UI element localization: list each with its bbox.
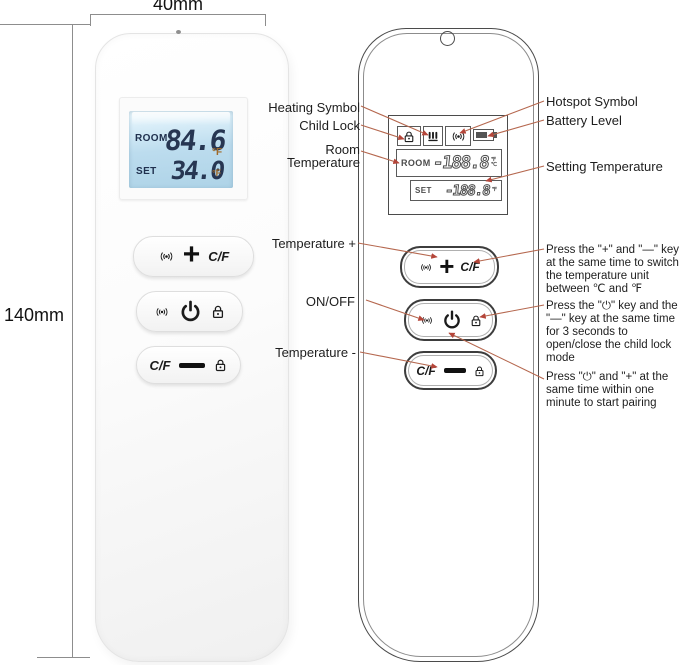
callout-hotspot-symbol: Hotspot Symbol <box>546 95 676 108</box>
callout-child-lock: Child Lock <box>250 119 360 132</box>
callout-heating-symbol: Heating Symbol <box>250 101 360 114</box>
height-dimension-tick-top <box>0 24 90 25</box>
room-label: ROOM <box>135 133 168 144</box>
child-lock-icon <box>403 130 415 143</box>
unit-celsius: ℃ <box>491 163 497 169</box>
instruction-pairing: Press "⏻" and "+" at the same time withi… <box>546 371 679 410</box>
broadcast-signal-icon <box>420 316 434 325</box>
height-dimension-line <box>72 24 73 658</box>
unit-fahrenheit: ℉ <box>492 188 497 194</box>
plus-symbol: + <box>183 240 201 270</box>
height-dimension-label: 140mm <box>0 305 68 326</box>
minus-symbol <box>179 363 205 368</box>
child-lock-icon <box>214 358 227 372</box>
instruction-child-lock: Press the "⏻" key and the "—" key at the… <box>546 300 679 364</box>
child-lock-icon <box>470 314 482 327</box>
set-label: SET <box>415 186 432 195</box>
hotspot-symbol-box <box>445 126 471 146</box>
power-icon <box>179 300 202 323</box>
width-dimension-tick-right <box>265 14 266 26</box>
plus-symbol: + <box>439 253 454 279</box>
temperature-plus-button-diagram[interactable]: + C/F <box>400 246 499 288</box>
room-units: ℉ ℃ <box>491 158 497 169</box>
set-value: -188.8 <box>444 184 490 198</box>
temperature-plus-button[interactable]: + C/F <box>133 236 254 277</box>
lanyard-hole <box>440 31 455 46</box>
minus-symbol <box>444 368 466 373</box>
width-dimension-line <box>90 14 266 15</box>
callout-battery-level: Battery Level <box>546 114 676 127</box>
child-lock-symbol-box <box>397 126 421 146</box>
callout-temperature-minus: Temperature - <box>246 346 356 359</box>
width-dimension-tick-left <box>90 14 91 26</box>
diagram-set-row: SET -188.8 ℉ <box>410 180 502 201</box>
set-label: SET <box>136 166 157 177</box>
callout-on-off: ON/OFF <box>250 295 355 308</box>
set-units: ℉ <box>492 188 497 194</box>
power-button-diagram[interactable] <box>404 299 497 341</box>
battery-terminal <box>494 132 497 138</box>
temperature-minus-button-diagram[interactable]: C/F <box>404 351 497 390</box>
battery-icon <box>473 129 494 141</box>
diagram-room-row: ROOM -188.8 ℉ ℃ <box>396 149 502 177</box>
temperature-minus-button[interactable]: C/F <box>136 346 241 384</box>
width-dimension-label: 40mm <box>130 0 226 13</box>
child-lock-icon <box>211 304 225 319</box>
height-dimension-tick-bottom <box>37 657 90 658</box>
broadcast-signal-icon <box>419 263 433 272</box>
set-unit: °F <box>212 168 221 178</box>
indicator-dot <box>176 30 181 34</box>
cf-label: C/F <box>416 364 435 378</box>
heating-symbol-box <box>423 126 443 146</box>
broadcast-signal-icon <box>154 307 170 317</box>
battery-level-fill <box>476 132 487 138</box>
power-button[interactable] <box>136 291 243 332</box>
callout-setting-temperature: Setting Temperature <box>546 160 679 173</box>
instruction-switch-unit: Press the "+" and "—" key at the same ti… <box>546 244 679 296</box>
callout-room-temperature: Room Temperature <box>262 143 360 170</box>
broadcast-signal-icon <box>158 251 175 262</box>
cf-label: C/F <box>150 358 171 373</box>
product-diagram-canvas: 40mm 140mm ROOM 84.6 °F SET 34.0 °F + C/… <box>0 0 679 665</box>
room-value: -188.8 <box>432 155 489 172</box>
callout-temperature-plus: Temperature + <box>246 237 356 250</box>
power-icon <box>442 310 462 330</box>
cf-label: C/F <box>460 260 479 274</box>
broadcast-signal-icon <box>450 131 467 142</box>
room-label: ROOM <box>401 158 431 168</box>
child-lock-icon <box>474 365 485 377</box>
heating-icon <box>427 130 439 142</box>
cf-label: C/F <box>208 249 229 264</box>
